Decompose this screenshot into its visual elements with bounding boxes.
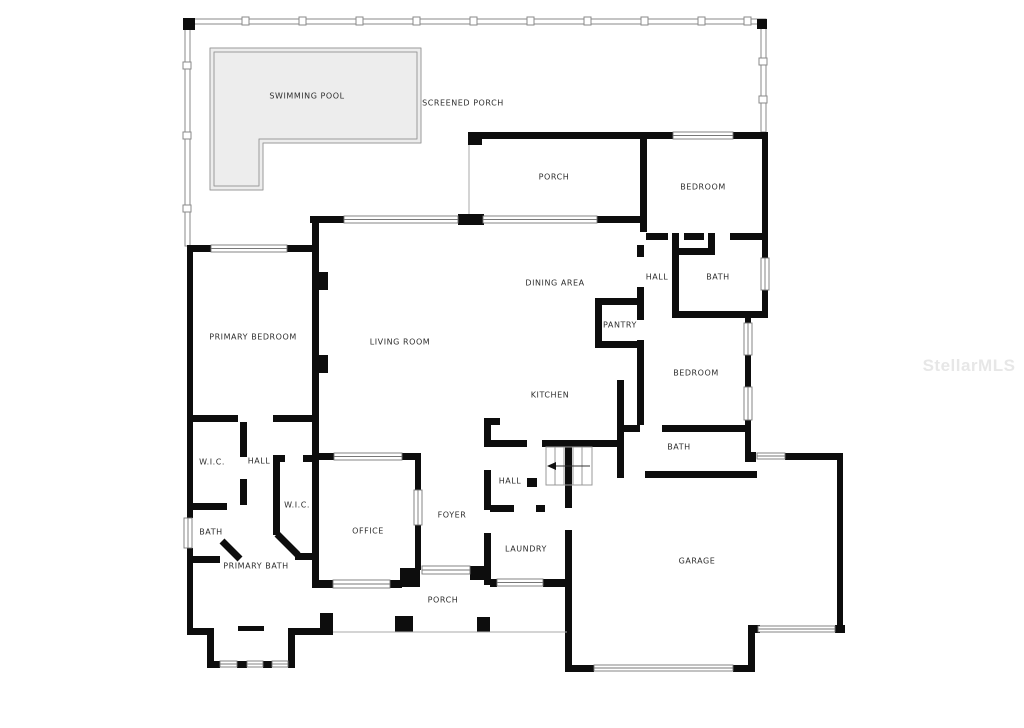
room-label-wic-left: W.I.C. xyxy=(199,458,225,467)
room-label-foyer: FOYER xyxy=(438,511,467,520)
room-label-dining-area: DINING AREA xyxy=(525,279,584,288)
room-label-hall-left: HALL xyxy=(248,457,271,466)
floor-plan: SWIMMING POOL SCREENED PORCH PORCH BEDRO… xyxy=(0,0,1024,728)
room-label-bath-right: BATH xyxy=(667,443,690,452)
room-label-hall-top: HALL xyxy=(646,273,669,282)
floor-plan-drawing xyxy=(0,0,1024,728)
angled-walls xyxy=(222,534,298,559)
room-label-porch-bottom: PORCH xyxy=(428,596,459,605)
room-label-bedroom-right: BEDROOM xyxy=(673,369,719,378)
room-label-primary-bedroom: PRIMARY BEDROOM xyxy=(209,333,297,342)
room-label-hall-center: HALL xyxy=(499,477,522,486)
room-label-porch-top: PORCH xyxy=(539,173,570,182)
stairs-direction-arrow xyxy=(547,462,556,470)
room-label-garage: GARAGE xyxy=(679,557,716,566)
room-label-pantry: PANTRY xyxy=(603,321,637,330)
room-label-laundry: LAUNDRY xyxy=(505,545,547,554)
room-label-bedroom-top: BEDROOM xyxy=(680,183,726,192)
room-label-bath-top: BATH xyxy=(706,273,729,282)
room-label-swimming-pool: SWIMMING POOL xyxy=(269,92,344,101)
room-label-office: OFFICE xyxy=(352,527,384,536)
swimming-pool-shape xyxy=(210,48,421,190)
windows xyxy=(184,132,835,671)
room-label-screened-porch: SCREENED PORCH xyxy=(422,99,504,108)
room-label-living-room: LIVING ROOM xyxy=(370,338,430,347)
room-label-wic-center: W.I.C. xyxy=(284,501,310,510)
watermark: StellarMLS xyxy=(923,356,1016,376)
room-label-primary-bath: PRIMARY BATH xyxy=(223,562,288,571)
room-label-kitchen: KITCHEN xyxy=(531,391,570,400)
room-label-bath-left: BATH xyxy=(199,528,222,537)
